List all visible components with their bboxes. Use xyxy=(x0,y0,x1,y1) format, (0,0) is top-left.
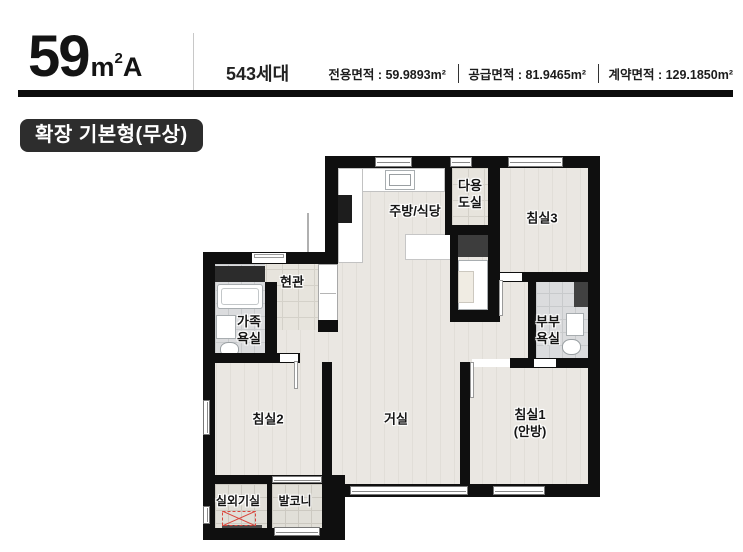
wall-segment xyxy=(203,252,215,540)
header-divider xyxy=(193,33,194,90)
bedroom3-window xyxy=(508,157,563,167)
room-label-bedroom3: 침실3 xyxy=(526,211,557,228)
room-label-family-bath: 가족 욕실 xyxy=(237,314,261,348)
master-bath-sink xyxy=(566,313,584,336)
area-spec-supply: 공급면적 : 81.9465m² xyxy=(458,64,586,83)
wall-segment xyxy=(445,168,452,232)
unit-type-title: 59 m 2 A xyxy=(28,32,142,83)
unit-size-number: 59 xyxy=(28,32,89,82)
shoe-closet xyxy=(318,264,338,321)
ac-unit-marker-icon xyxy=(222,511,256,526)
bedroom1-door-opening xyxy=(472,359,510,367)
room-label-ac-room: 실외기실 xyxy=(216,494,260,510)
unit-size-unit: m xyxy=(91,52,115,83)
kitchen-window xyxy=(375,157,412,167)
room-label-entrance: 현관 xyxy=(280,275,304,292)
room-label-balcony: 발코니 xyxy=(278,494,311,510)
room-label-master-bath: 부부 욕실 xyxy=(536,314,560,348)
bathtub xyxy=(217,284,263,309)
bedroom2-window xyxy=(203,400,210,435)
kitchen-sink xyxy=(385,170,415,190)
bedroom2-door-leaf xyxy=(294,361,298,389)
balcony-window xyxy=(274,527,320,536)
storage-unit xyxy=(458,235,488,257)
households-count: 543세대 xyxy=(226,60,289,86)
area-specs: 전용면적 : 59.9893m² 공급면적 : 81.9465m² 계약면적 :… xyxy=(328,64,733,83)
wall-segment xyxy=(322,362,332,484)
wall-segment xyxy=(510,358,530,368)
living-room-window xyxy=(350,486,468,495)
header-rule xyxy=(18,90,733,97)
family-bath-sink xyxy=(216,315,236,339)
room-label-living: 거실 xyxy=(384,412,408,429)
master-bath-door-opening xyxy=(534,359,556,367)
exterior-wall-stub xyxy=(307,213,309,253)
cabinet-recess xyxy=(458,271,474,303)
bedroom3-door-opening xyxy=(500,273,522,281)
utility-window xyxy=(450,157,472,167)
wall-segment xyxy=(450,232,458,322)
unit-variant: A xyxy=(123,52,143,83)
area-spec-exclusive: 전용면적 : 59.9893m² xyxy=(328,64,446,83)
wall-segment xyxy=(267,484,272,534)
wall-segment xyxy=(265,282,277,353)
bedroom1-window xyxy=(493,486,545,495)
room-label-bedroom1: 침실1 (안방) xyxy=(514,407,547,441)
wall-segment xyxy=(460,362,470,484)
floor-plan: 주방/식당 다용 도실 침실3 현관 가족 욕실 부부 욕실 침실2 거실 침실… xyxy=(200,150,606,542)
ac-room-window xyxy=(203,506,210,524)
area-spec-contract: 계약면적 : 129.1850m² xyxy=(598,64,733,83)
balcony-door-window xyxy=(272,476,322,483)
wall-segment xyxy=(528,272,536,368)
kitchen-range xyxy=(338,195,352,223)
plan-outside-area xyxy=(345,497,606,542)
bedroom3-door-leaf xyxy=(499,280,503,316)
wall-segment xyxy=(588,156,600,497)
room-label-kitchen: 주방/식당 xyxy=(389,204,440,221)
floor-plan-sheet: 59 m 2 A 543세대 전용면적 : 59.9893m² 공급면적 : 8… xyxy=(0,0,743,552)
wall-segment xyxy=(325,156,338,264)
bedroom1-door-leaf xyxy=(470,362,474,398)
family-bath-shower-zone xyxy=(215,266,265,282)
unit-size-exponent: 2 xyxy=(115,50,123,67)
room-label-bedroom2: 침실2 xyxy=(252,412,283,429)
room-label-utility: 다용 도실 xyxy=(458,178,482,212)
entrance-door-leaf xyxy=(254,254,284,258)
plan-type-badge: 확장 기본형(무상) xyxy=(20,119,203,152)
master-bath-toilet xyxy=(562,339,581,355)
wall-segment xyxy=(318,320,338,332)
